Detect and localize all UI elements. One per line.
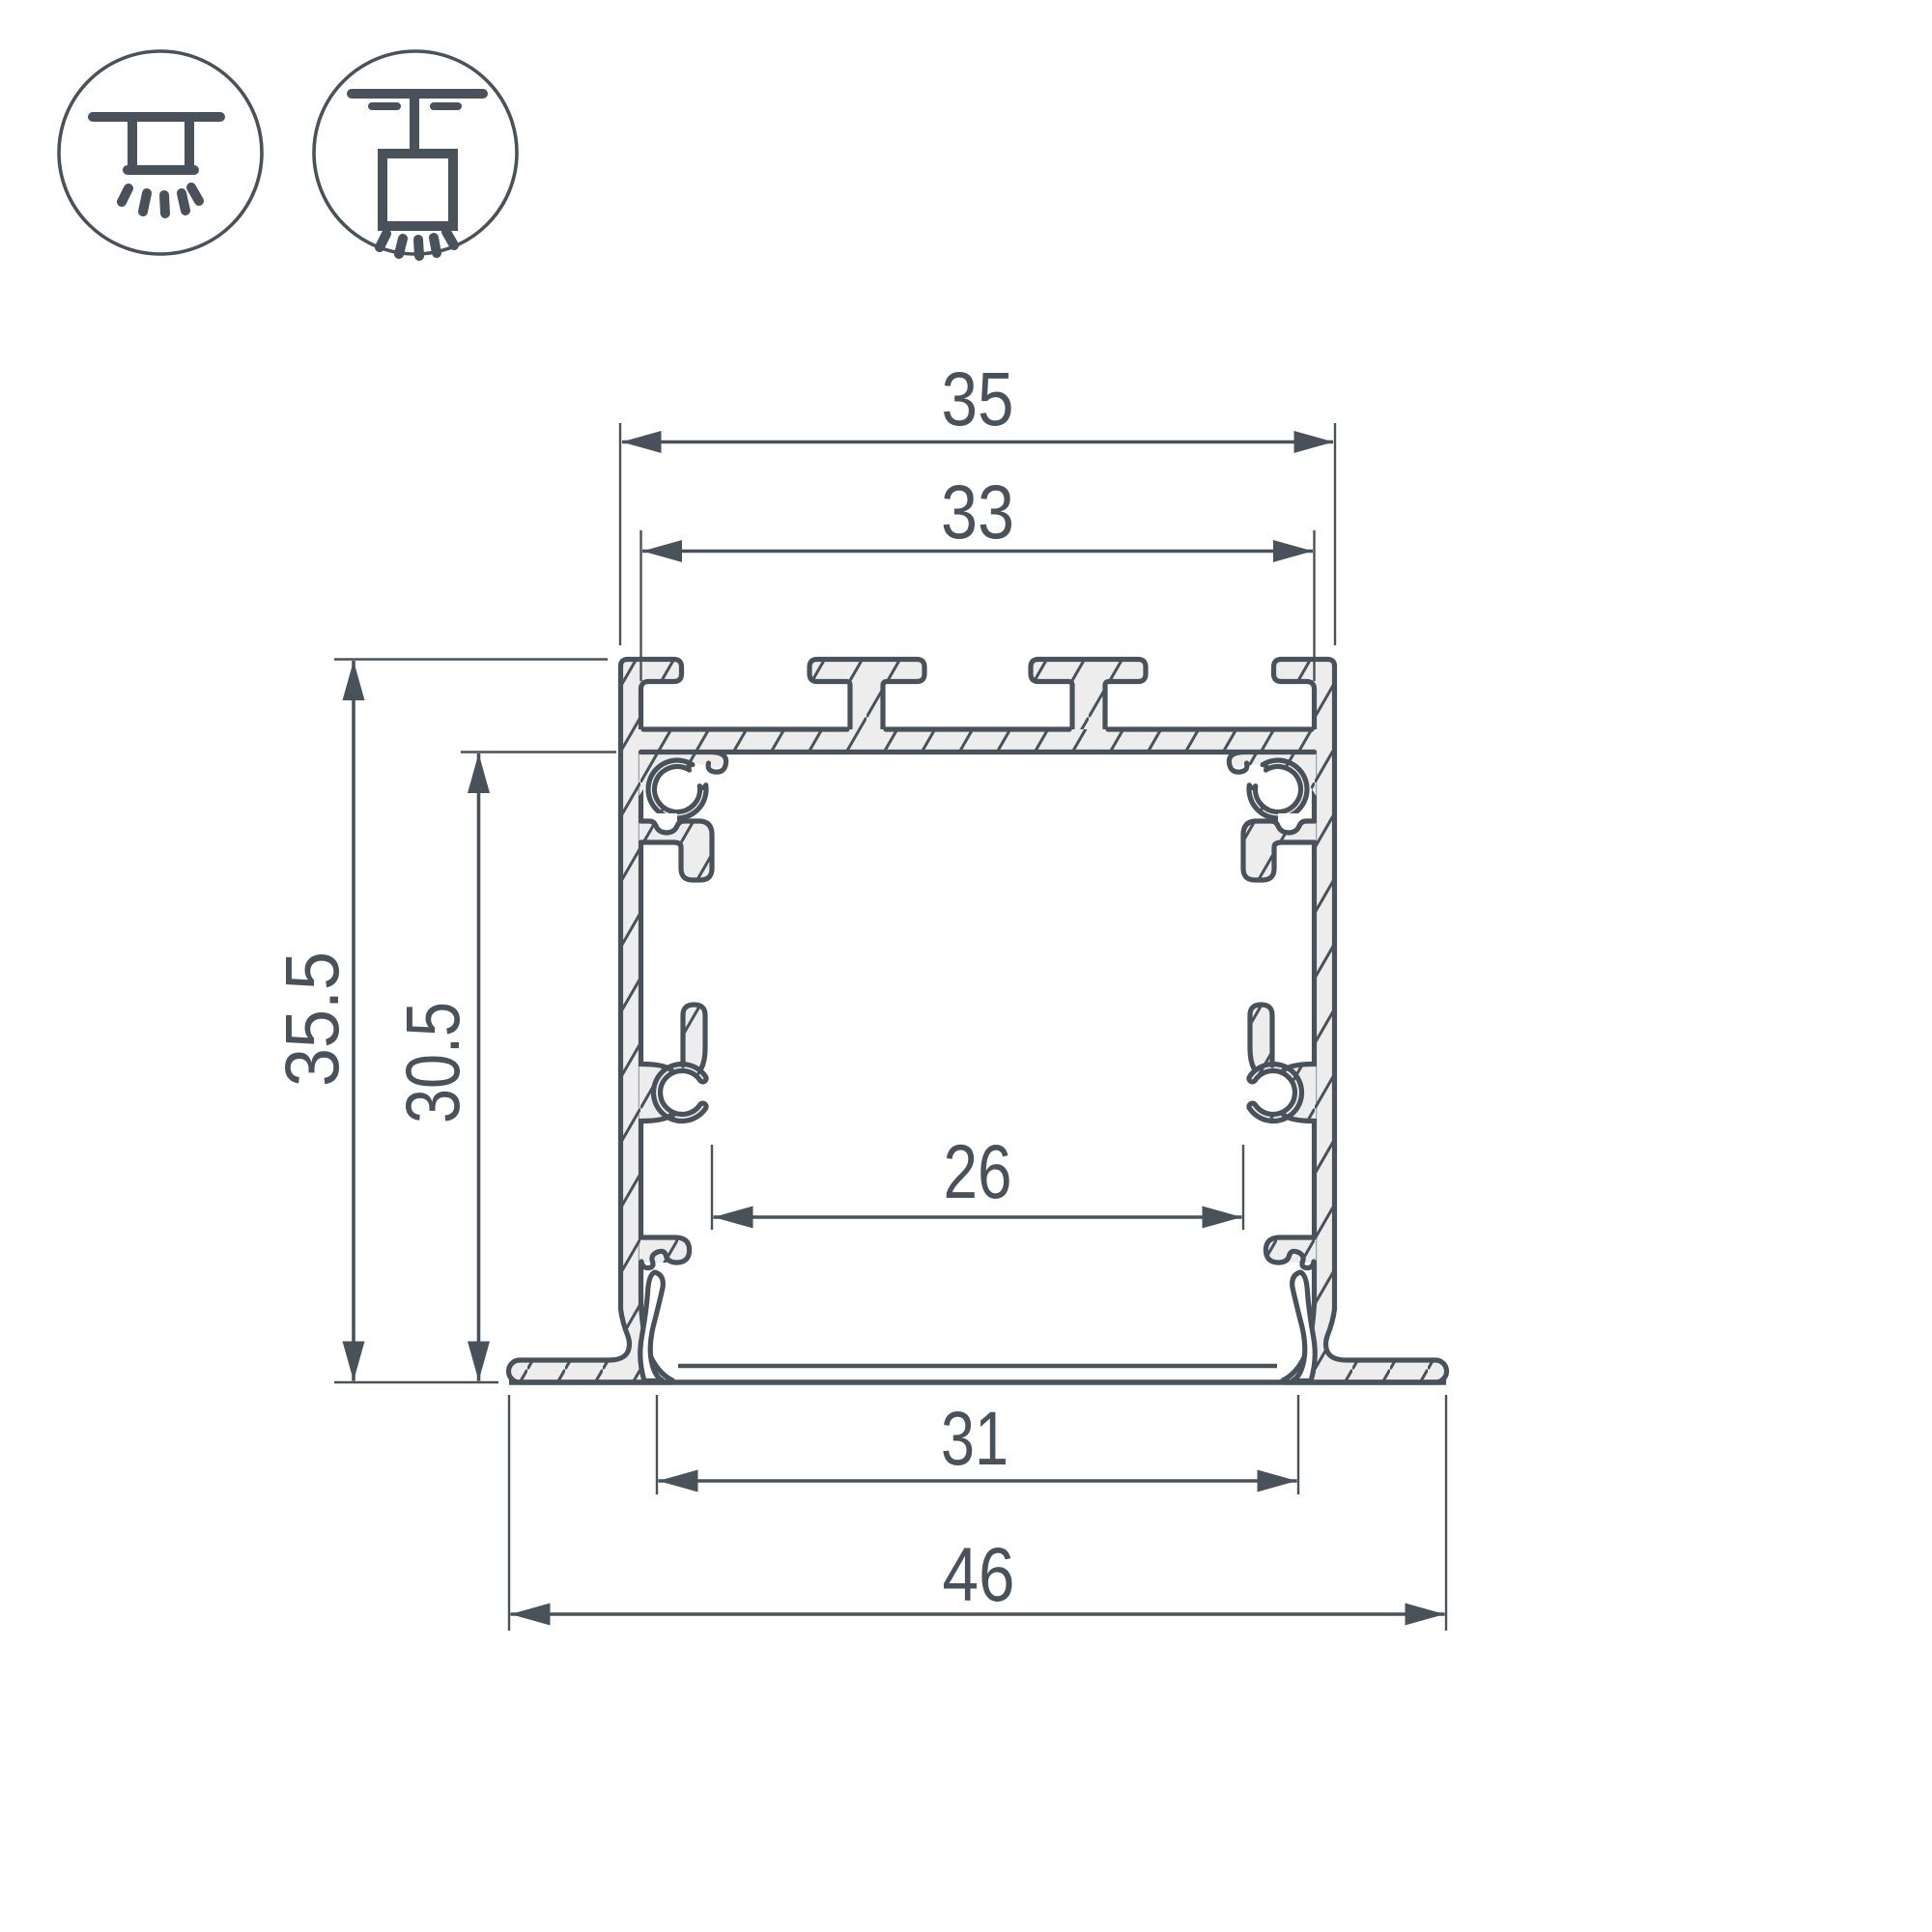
- svg-text:35.5: 35.5: [269, 952, 355, 1087]
- svg-text:26: 26: [944, 1128, 1012, 1214]
- svg-text:30.5: 30.5: [389, 1002, 475, 1123]
- svg-text:31: 31: [941, 1395, 1009, 1481]
- svg-text:35: 35: [942, 355, 1014, 441]
- svg-text:46: 46: [943, 1531, 1015, 1617]
- svg-text:33: 33: [941, 469, 1014, 554]
